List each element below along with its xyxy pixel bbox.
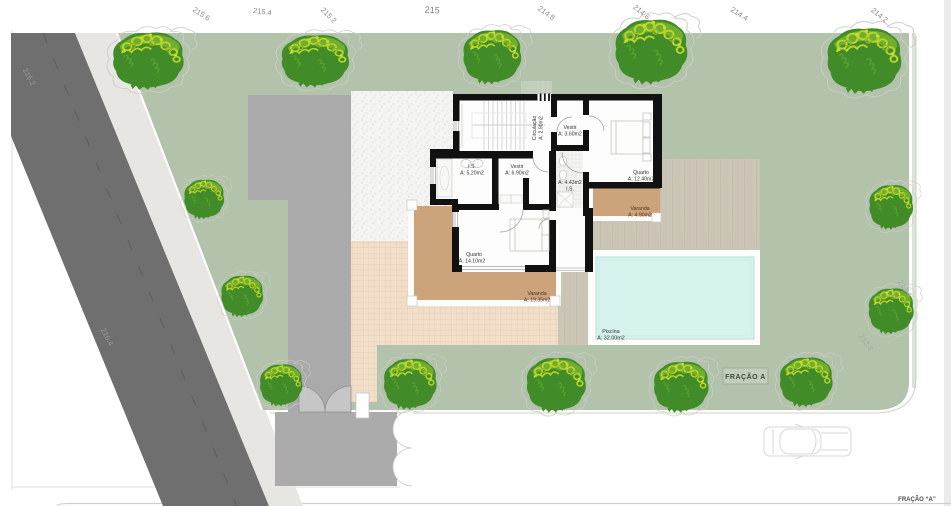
svg-text:Vestir: Vestir: [511, 164, 524, 170]
svg-text:A: 19.35m2: A: 19.35m2: [524, 298, 551, 304]
svg-text:Vestir: Vestir: [564, 125, 577, 131]
svg-text:A: 2.90m2: A: 2.90m2: [539, 116, 545, 140]
svg-text:Varanda: Varanda: [527, 291, 546, 297]
svg-text:Piscina: Piscina: [602, 329, 619, 335]
svg-text:A: 4.90m2: A: 4.90m2: [628, 213, 652, 219]
svg-text:Varanda: Varanda: [630, 206, 649, 212]
svg-text:A: 6.90m2: A: 6.90m2: [505, 171, 529, 177]
svg-text:Quarto: Quarto: [466, 252, 482, 258]
svg-text:A: 3.60m2: A: 3.60m2: [558, 132, 582, 138]
svg-text:215: 215: [424, 4, 440, 15]
svg-text:Quarto: Quarto: [633, 170, 649, 176]
svg-text:A: 32.00m2: A: 32.00m2: [597, 336, 625, 342]
svg-text:A: 12.40m2: A: 12.40m2: [628, 177, 655, 183]
svg-text:FRAÇÃO “A”: FRAÇÃO “A”: [898, 496, 936, 503]
svg-text:Circulação: Circulação: [532, 116, 538, 141]
svg-text:I.S.: I.S.: [468, 164, 476, 170]
svg-text:A: 14.10m2: A: 14.10m2: [459, 259, 486, 265]
svg-text:FRAÇÃO A: FRAÇÃO A: [725, 372, 766, 381]
svg-text:I.S.: I.S.: [566, 187, 574, 193]
svg-text:A: 5.20m2: A: 5.20m2: [460, 171, 484, 177]
svg-text:A: 4.43m2: A: 4.43m2: [558, 180, 582, 186]
